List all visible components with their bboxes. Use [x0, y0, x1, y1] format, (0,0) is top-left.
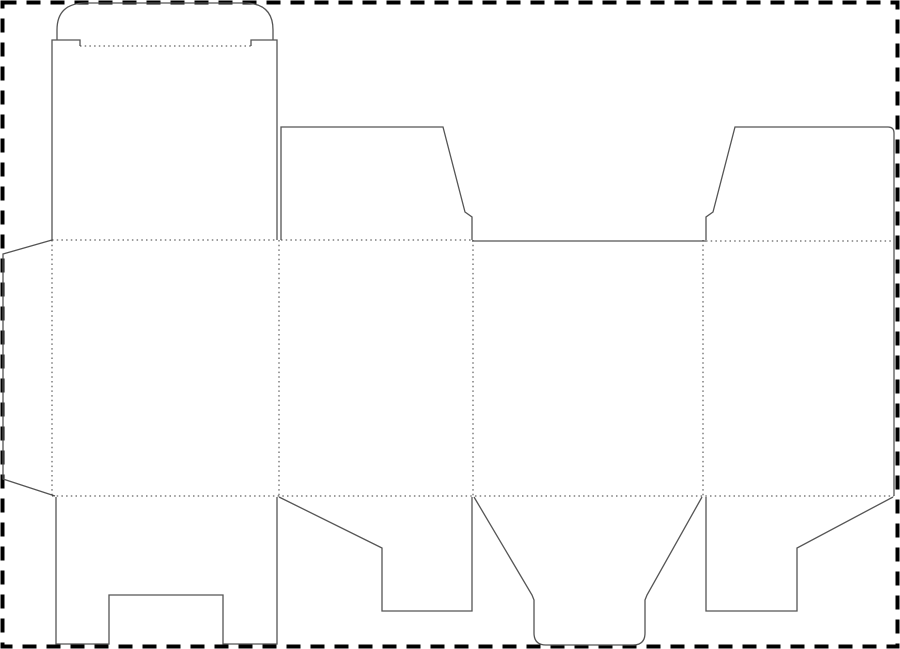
bottom-tuck-tongue-outline: [474, 497, 702, 645]
top-dust-flap-right-outline: [706, 127, 894, 496]
top-dust-flap-left-outline: [281, 127, 472, 240]
bottom-dust-flap-left-outline: [279, 497, 472, 611]
tuck-flap-outline: [57, 3, 273, 40]
lid-right-edge: [251, 40, 277, 240]
dieline-page: [0, 0, 900, 649]
sheet-border: [3, 3, 898, 647]
dieline-canvas: [0, 0, 900, 649]
bottom-dust-flap-right-outline: [706, 497, 893, 611]
lid-left-edge: [52, 40, 80, 240]
bottom-notched-flap-outline: [56, 497, 277, 644]
glue-flap-outline: [3, 240, 55, 496]
